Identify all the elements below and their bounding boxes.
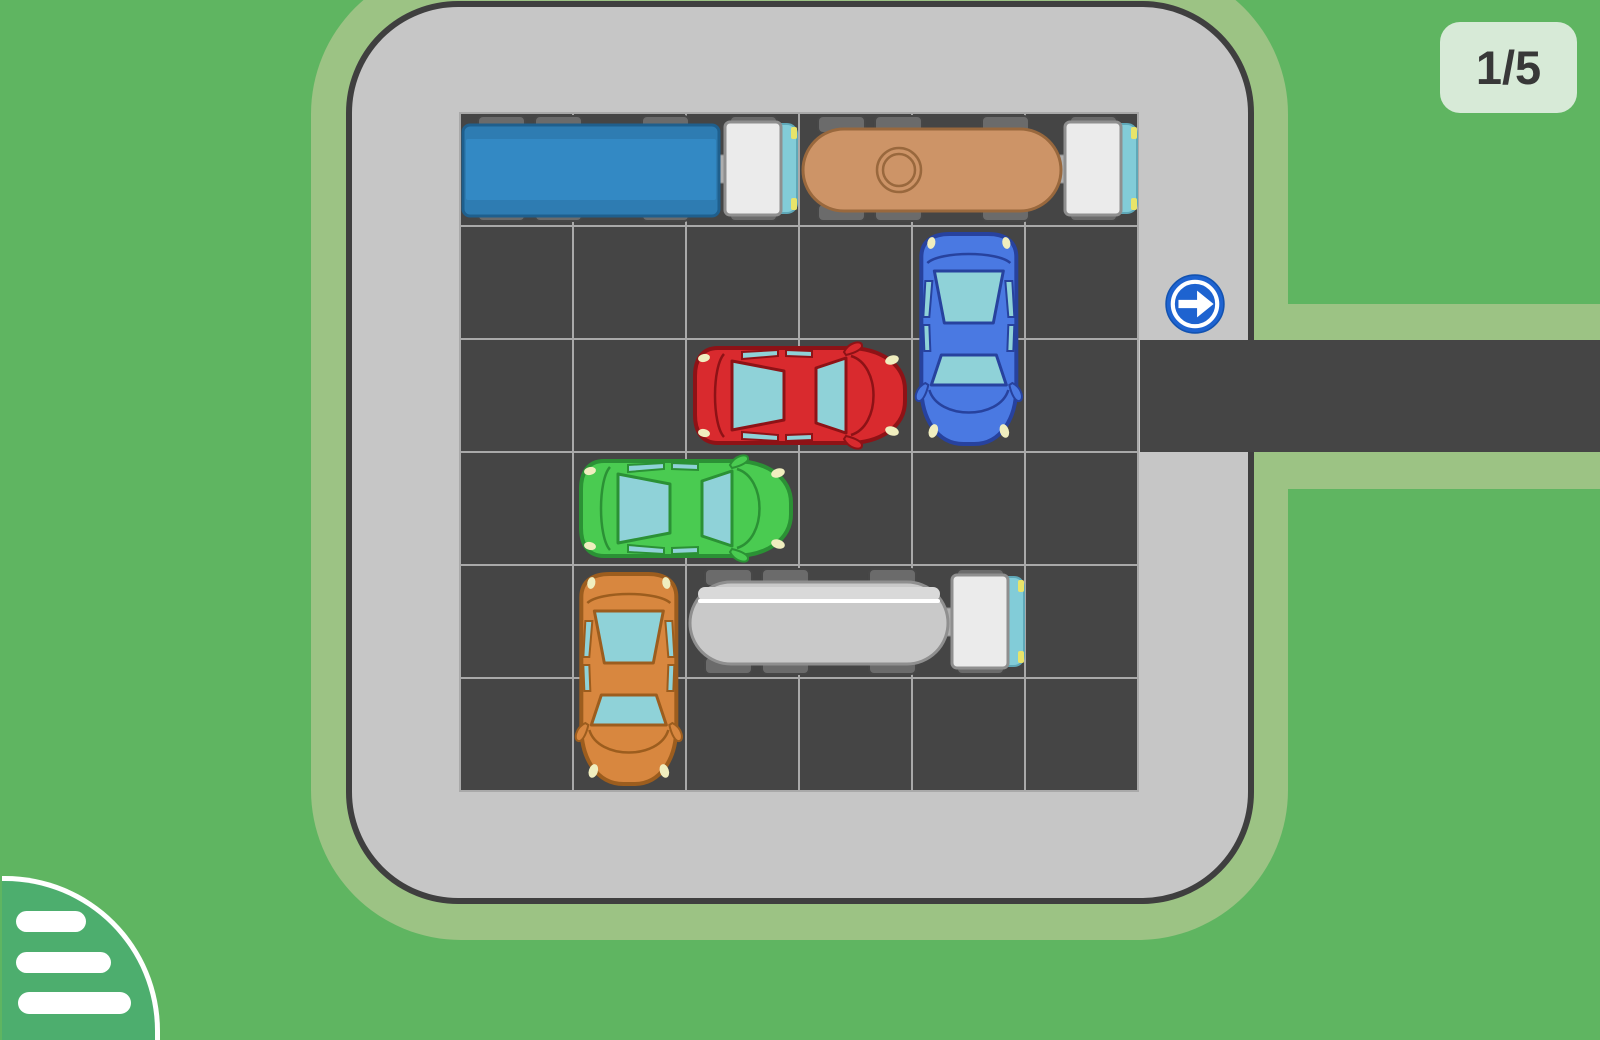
menu-button[interactable] <box>2 876 160 1040</box>
grid-cell <box>461 340 572 451</box>
exit-arrow-sign <box>1164 273 1226 335</box>
grid-cell <box>1026 340 1137 451</box>
grid-cell <box>1026 227 1137 338</box>
exit-road <box>1140 340 1600 452</box>
grid-cell <box>800 227 911 338</box>
level-badge: 1/5 <box>1440 22 1577 113</box>
grid-cell <box>574 227 685 338</box>
grid-cell <box>461 566 572 677</box>
red-car[interactable] <box>686 339 913 452</box>
grid-cell <box>1026 566 1137 677</box>
grid-cell <box>461 679 572 790</box>
menu-bar <box>16 952 111 973</box>
blue-truck[interactable] <box>459 112 799 225</box>
orange-car[interactable] <box>572 565 685 792</box>
grid-cell <box>687 679 798 790</box>
green-car[interactable] <box>572 452 799 565</box>
tan-tanker-truck[interactable] <box>799 112 1139 225</box>
white-tanker-truck[interactable] <box>686 565 1026 678</box>
blue-car[interactable] <box>912 225 1025 452</box>
grid-cell <box>1026 453 1137 564</box>
grid-cell <box>800 679 911 790</box>
grid-cell <box>687 227 798 338</box>
level-badge-text: 1/5 <box>1476 40 1541 95</box>
grid-cell <box>800 453 911 564</box>
menu-bar <box>16 911 86 932</box>
grid-cell <box>574 340 685 451</box>
arrow-right-icon <box>1166 275 1224 333</box>
grid-cell <box>461 227 572 338</box>
menu-bar <box>18 992 131 1014</box>
grid-cell <box>1026 679 1137 790</box>
grid-cell <box>913 679 1024 790</box>
grid-cell <box>461 453 572 564</box>
grid-cell <box>913 453 1024 564</box>
game-stage: 1/5 <box>0 0 1600 1040</box>
